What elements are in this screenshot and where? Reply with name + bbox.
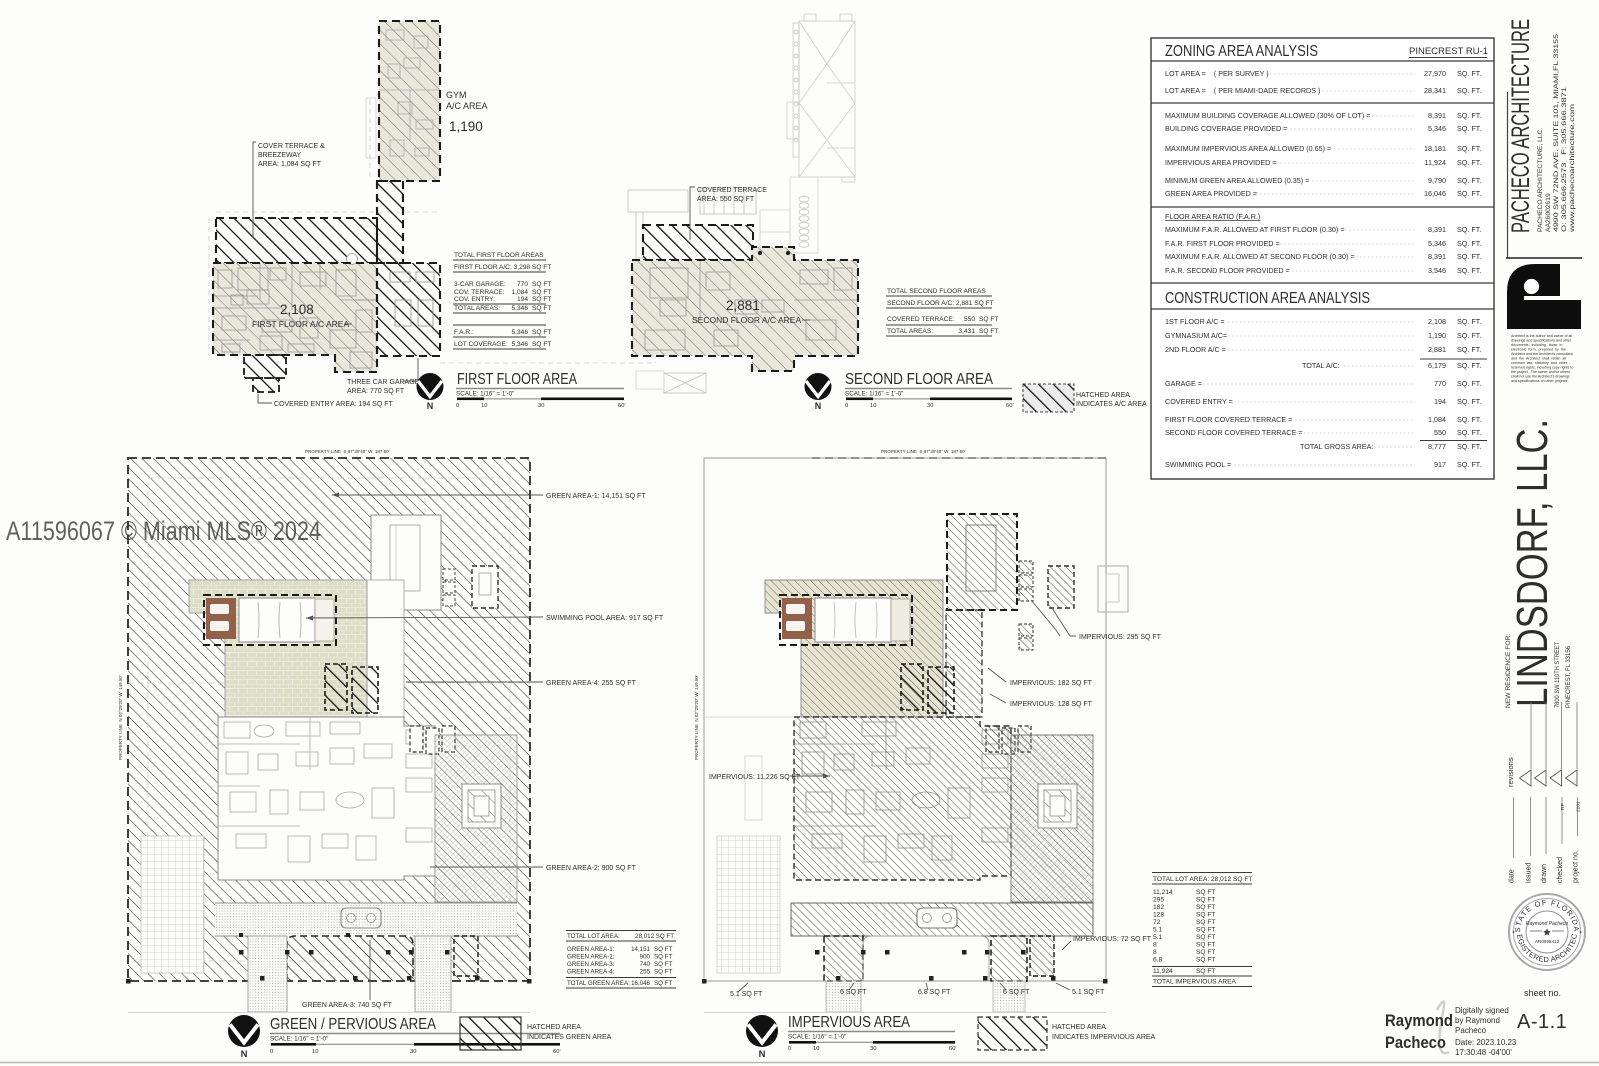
svg-text:FIRST FLOOR COVERED TERRACE =: FIRST FLOOR COVERED TERRACE = xyxy=(1165,415,1292,424)
svg-text:4990 SW 72ND AVE. SUITE 101, M: 4990 SW 72ND AVE. SUITE 101, MIAMI,FL 33… xyxy=(1553,34,1560,232)
svg-text:5,346: 5,346 xyxy=(1428,239,1446,248)
svg-text:182: 182 xyxy=(1153,904,1164,911)
svg-text:by Raymond: by Raymond xyxy=(1455,1016,1500,1025)
svg-text:770: 770 xyxy=(517,281,528,288)
svg-text:10: 10 xyxy=(813,1046,819,1052)
svg-text:COV. ENTRY:: COV. ENTRY: xyxy=(454,296,495,303)
svg-text:FIRST FLOOR A/C: 3,298 SQ FT: FIRST FLOOR A/C: 3,298 SQ FT xyxy=(454,264,551,271)
svg-text:SQ FT: SQ FT xyxy=(532,341,551,348)
svg-text:SECOND FLOOR A/C: 2,881 SQ FT: SECOND FLOOR A/C: 2,881 SQ FT xyxy=(887,300,994,307)
svg-text:TOTAL AREAS:: TOTAL AREAS: xyxy=(454,305,500,312)
svg-text:A/C AREA: A/C AREA xyxy=(446,101,488,111)
svg-text:SCALE: 1/16" = 1'-0": SCALE: 1/16" = 1'-0" xyxy=(456,391,514,398)
svg-text:SQ. FT.: SQ. FT. xyxy=(1457,189,1481,198)
svg-text:SECOND FLOOR AREA: SECOND FLOOR AREA xyxy=(845,371,994,388)
svg-text:Digitally signed: Digitally signed xyxy=(1455,1006,1509,1015)
svg-text:2,881: 2,881 xyxy=(1428,345,1446,354)
svg-text:MAXIMUM IMPERVIOUS AREA ALLOWE: MAXIMUM IMPERVIOUS AREA ALLOWED (0.65) = xyxy=(1165,144,1331,153)
svg-text:SCALE: 1/16" = 1'-0": SCALE: 1/16" = 1'-0" xyxy=(270,1036,328,1043)
svg-text:0: 0 xyxy=(456,403,459,409)
svg-text:SQ. FT.: SQ. FT. xyxy=(1457,442,1481,451)
svg-text:sheet no.: sheet no. xyxy=(1524,988,1561,998)
svg-text:FLOOR AREA RATIO (F.A.R.): FLOOR AREA RATIO (F.A.R.) xyxy=(1165,212,1260,221)
svg-text:N: N xyxy=(759,1049,766,1060)
svg-text:60': 60' xyxy=(949,1046,957,1052)
svg-text:GREEN AREA PROVIDED =: GREEN AREA PROVIDED = xyxy=(1165,189,1257,198)
svg-text:SQ FT: SQ FT xyxy=(654,954,672,961)
svg-text:6.8 SQ FT: 6.8 SQ FT xyxy=(918,989,951,996)
svg-text:COV. TERRACE:: COV. TERRACE: xyxy=(454,289,505,296)
svg-text:900: 900 xyxy=(640,954,651,961)
svg-text:AR0098412: AR0098412 xyxy=(1535,939,1560,944)
svg-text:F.A.R. FIRST FLOOR PROVIDED =: F.A.R. FIRST FLOOR PROVIDED = xyxy=(1165,239,1280,248)
svg-text:0: 0 xyxy=(845,403,848,409)
svg-text:IMPERVIOUS: 182 SQ FT: IMPERVIOUS: 182 SQ FT xyxy=(1010,680,1093,687)
svg-text:6.8: 6.8 xyxy=(1153,957,1162,964)
svg-text:GREEN AREA-4:: GREEN AREA-4: xyxy=(567,969,615,976)
svg-text:GARAGE =: GARAGE = xyxy=(1165,379,1202,388)
svg-text:9,790: 9,790 xyxy=(1428,176,1446,185)
svg-text:5.1: 5.1 xyxy=(1153,927,1162,934)
svg-text:N: N xyxy=(427,401,434,411)
svg-text:SQ. FT.: SQ. FT. xyxy=(1457,239,1481,248)
svg-text:GREEN AREA-1:: GREEN AREA-1: xyxy=(567,946,615,953)
svg-text:PROPERTY LINE S 87°30'40" W: PROPERTY LINE S 87°30'40" W 187.50' xyxy=(305,449,390,454)
svg-text:GYMNASIUM A/C=: GYMNASIUM A/C= xyxy=(1165,331,1227,340)
svg-text:SQ. FT.: SQ. FT. xyxy=(1457,361,1481,370)
svg-text:SQ. FT.: SQ. FT. xyxy=(1457,158,1481,167)
svg-text:shall not use the Architect's: shall not use the Architect's drawings xyxy=(1511,375,1570,379)
svg-text:Date: 2023.10.23: Date: 2023.10.23 xyxy=(1455,1038,1517,1047)
svg-text:checked: checked xyxy=(1557,857,1564,883)
svg-text:and specifications on other pr: and specifications on other projects. xyxy=(1511,379,1568,383)
svg-text:SQ. FT.: SQ. FT. xyxy=(1457,379,1481,388)
svg-text:HATCHED AREA: HATCHED AREA xyxy=(1076,392,1130,399)
svg-text:SQ FT: SQ FT xyxy=(654,961,672,968)
svg-text:Architect is the author and ow: Architect is the author and owner of all xyxy=(1511,334,1572,338)
svg-text:Raymond Pacheco: Raymond Pacheco xyxy=(1526,921,1568,927)
svg-text:2,108: 2,108 xyxy=(280,302,314,317)
svg-text:5,346: 5,346 xyxy=(511,341,528,348)
svg-text:drawn: drawn xyxy=(1541,864,1548,883)
svg-text:date: date xyxy=(1509,869,1516,883)
svg-text:SQ. FT.: SQ. FT. xyxy=(1457,397,1481,406)
svg-text:SQ FT: SQ FT xyxy=(1196,904,1215,911)
svg-text:common law, statutory and: common law, statutory and other xyxy=(1511,361,1568,365)
svg-text:28,012 SQ FT: 28,012 SQ FT xyxy=(635,933,674,940)
svg-text:8,777: 8,777 xyxy=(1428,442,1446,451)
svg-text:A11596067 © Miami MLS® 2024: A11596067 © Miami MLS® 2024 xyxy=(6,516,321,546)
svg-text:SQ. FT.: SQ. FT. xyxy=(1457,111,1481,120)
svg-text:SECOND FLOOR COVERED TERRACE =: SECOND FLOOR COVERED TERRACE = xyxy=(1165,428,1302,437)
svg-text:AREA: 1,084 SQ FT: AREA: 1,084 SQ FT xyxy=(258,161,322,168)
svg-text:60': 60' xyxy=(1006,403,1014,409)
svg-text:COVER TERRACE &: COVER TERRACE & xyxy=(258,143,325,150)
svg-text:30: 30 xyxy=(410,1049,416,1055)
svg-text:917: 917 xyxy=(1434,460,1446,469)
svg-text:IMPERVIOUS: 128 SQ FT: IMPERVIOUS: 128 SQ FT xyxy=(1010,701,1093,708)
svg-text:SWIMMING POOL =: SWIMMING POOL = xyxy=(1165,460,1231,469)
svg-text:SECOND FLOOR A/C AREA: SECOND FLOOR A/C AREA xyxy=(692,315,801,325)
svg-text:8,391: 8,391 xyxy=(1428,252,1446,261)
svg-text:GYM: GYM xyxy=(446,90,467,100)
svg-text:MINIMUM GREEN AREA ALLOWED (0.: MINIMUM GREEN AREA ALLOWED (0.35) = xyxy=(1165,176,1309,185)
svg-text:1ST FLOOR A/C =: 1ST FLOOR A/C = xyxy=(1165,317,1225,326)
svg-text:ZONING AREA ANALYSIS: ZONING AREA ANALYSIS xyxy=(1165,43,1318,60)
svg-text:194: 194 xyxy=(1434,397,1446,406)
svg-text:BREEZEWAY: BREEZEWAY xyxy=(258,152,302,159)
svg-text:HATCHED AREA: HATCHED AREA xyxy=(527,1024,581,1031)
svg-text:194: 194 xyxy=(517,296,528,303)
svg-text:FIRST FLOOR A/C AREA: FIRST FLOOR A/C AREA xyxy=(252,319,349,329)
svg-text:PINECREST RU-1: PINECREST RU-1 xyxy=(1409,46,1488,57)
svg-text:SQ FT: SQ FT xyxy=(532,289,551,296)
svg-text:INDICATES IMPERVIOUS AREA: INDICATES IMPERVIOUS AREA xyxy=(1052,1034,1156,1041)
svg-text:295: 295 xyxy=(1153,897,1164,904)
svg-text:5.1: 5.1 xyxy=(1153,934,1162,941)
svg-text:6 SQ FT: 6 SQ FT xyxy=(840,989,867,996)
svg-text:Pacheco: Pacheco xyxy=(1455,1026,1487,1035)
svg-text:5,346: 5,346 xyxy=(511,305,528,312)
svg-text:2,881: 2,881 xyxy=(726,298,760,313)
svg-text:F.A.R. SECOND FLOOR PROVIDED =: F.A.R. SECOND FLOOR PROVIDED = xyxy=(1165,266,1290,275)
svg-text:GREEN AREA-3: 740 SQ FT: GREEN AREA-3: 740 SQ FT xyxy=(302,1002,393,1009)
svg-text:SQ FT: SQ FT xyxy=(1196,927,1215,934)
svg-text:1,084: 1,084 xyxy=(1428,415,1446,424)
svg-text:PACHECO ARCHITECTURE: PACHECO ARCHITECTURE xyxy=(1507,19,1535,233)
svg-text:10: 10 xyxy=(481,403,487,409)
svg-text:RP: RP xyxy=(1560,803,1566,810)
svg-text:and the Architect shall re: and the Architect shall retain all xyxy=(1511,357,1566,361)
svg-text:F.A.R.:: F.A.R.: xyxy=(454,329,474,336)
svg-text:SQ FT: SQ FT xyxy=(1196,949,1215,956)
svg-text:30: 30 xyxy=(870,1046,876,1052)
svg-text:PROPERTY LINE S 87°30'40" W: PROPERTY LINE S 87°30'40" W 187.50' xyxy=(881,449,966,454)
svg-text:TOTAL LOT AREA: 28,012 SQ FT: TOTAL LOT AREA: 28,012 SQ FT xyxy=(1153,876,1252,883)
svg-text:1,190: 1,190 xyxy=(449,119,483,134)
svg-text:7800 SW 110TH STREET: 7800 SW 110TH STREET xyxy=(1554,642,1561,708)
svg-text:SQ FT: SQ FT xyxy=(532,305,551,312)
svg-text:GREEN AREA-3:: GREEN AREA-3: xyxy=(567,961,615,968)
svg-text:TOTAL SECOND FLOOR AREAS: TOTAL SECOND FLOOR AREAS xyxy=(887,288,986,295)
svg-text:28,341: 28,341 xyxy=(1424,86,1446,95)
svg-text:SQ FT: SQ FT xyxy=(532,329,551,336)
svg-text:5,346: 5,346 xyxy=(511,329,528,336)
svg-text:TOTAL GROSS AREA:: TOTAL GROSS AREA: xyxy=(1300,442,1373,451)
svg-text:SQ FT: SQ FT xyxy=(1196,968,1215,975)
svg-text:electronic form, prepared b: electronic form, prepared by the xyxy=(1511,348,1566,352)
svg-text:3,431: 3,431 xyxy=(958,328,975,335)
svg-text:MAXIMUM F.A.R. ALLOWED AT FIRS: MAXIMUM F.A.R. ALLOWED AT FIRST FLOOR (0… xyxy=(1165,225,1345,234)
svg-text:550: 550 xyxy=(1434,428,1446,437)
svg-text:SQ. FT.: SQ. FT. xyxy=(1457,460,1481,469)
svg-text:A-1.1: A-1.1 xyxy=(1517,1011,1567,1033)
svg-text:MAXIMUM F.A.R. ALLOWED AT SECO: MAXIMUM F.A.R. ALLOWED AT SECOND FLOOR (… xyxy=(1165,252,1355,261)
svg-text:5,346: 5,346 xyxy=(1428,124,1446,133)
svg-text:TOTAL GREEN AREA:: TOTAL GREEN AREA: xyxy=(567,980,630,987)
svg-text:TOTAL FIRST FLOOR AREAS: TOTAL FIRST FLOOR AREAS xyxy=(454,252,544,259)
svg-text:8: 8 xyxy=(1153,942,1157,949)
svg-text:Raymond: Raymond xyxy=(1385,1011,1453,1030)
svg-text:PROPERTY LINE N 02°29'20" W: PROPERTY LINE N 02°29'20" W 149.50' xyxy=(694,675,699,760)
svg-text:3,546: 3,546 xyxy=(1428,266,1446,275)
svg-text:revisions: revisions xyxy=(1506,757,1515,787)
svg-text:TOTAL LOT AREA:: TOTAL LOT AREA: xyxy=(567,933,620,940)
svg-text:IMPERVIOUS: 295 SQ FT: IMPERVIOUS: 295 SQ FT xyxy=(1079,634,1162,641)
svg-text:2ND FLOOR A/C =: 2ND FLOOR A/C = xyxy=(1165,345,1226,354)
svg-text:SCALE: 1/16" = 1'-0": SCALE: 1/16" = 1'-0" xyxy=(845,391,903,398)
svg-text:HATCHED AREA: HATCHED AREA xyxy=(1052,1024,1106,1031)
svg-text:SQ FT: SQ FT xyxy=(1196,912,1215,919)
svg-text:PINECREST, FL 33156: PINECREST, FL 33156 xyxy=(1565,646,1572,708)
svg-text:18,181: 18,181 xyxy=(1424,144,1446,153)
svg-text:AREA: 550 SQ FT: AREA: 550 SQ FT xyxy=(697,196,755,203)
svg-text:14,151: 14,151 xyxy=(631,946,650,953)
svg-text:SQ. FT.: SQ. FT. xyxy=(1457,415,1481,424)
svg-text:GREEN AREA-2: 900 SQ FT: GREEN AREA-2: 900 SQ FT xyxy=(546,865,637,872)
svg-text:SQ FT: SQ FT xyxy=(532,296,551,303)
svg-text:60': 60' xyxy=(553,1049,561,1055)
svg-text:30: 30 xyxy=(538,403,544,409)
svg-text:SQ. FT.: SQ. FT. xyxy=(1457,176,1481,185)
svg-text:SQ FT: SQ FT xyxy=(654,946,672,953)
svg-text:5.1 SQ FT: 5.1 SQ FT xyxy=(1072,989,1105,996)
svg-text:SQ. FT.: SQ. FT. xyxy=(1457,266,1481,275)
svg-text:SQ. FT.: SQ. FT. xyxy=(1457,69,1481,78)
svg-text:www.pachecoarchitecture.com: www.pachecoarchitecture.com xyxy=(1569,103,1576,233)
svg-text:LOT AREA = ( PER MIAMI-DADE: LOT AREA = ( PER MIAMI-DADE RECORDS ) xyxy=(1165,86,1320,95)
svg-text:27,970: 27,970 xyxy=(1424,69,1446,78)
svg-text:GREEN AREA-2:: GREEN AREA-2: xyxy=(567,954,615,961)
svg-text:11,924: 11,924 xyxy=(1153,968,1173,975)
svg-text:60': 60' xyxy=(618,403,626,409)
svg-text:SQ FT: SQ FT xyxy=(1196,957,1215,964)
svg-text:Pacheco: Pacheco xyxy=(1385,1033,1446,1052)
svg-text:8: 8 xyxy=(1153,949,1157,956)
svg-text:1,190: 1,190 xyxy=(1428,331,1446,340)
svg-text:CONSTRUCTION AREA ANALYSIS: CONSTRUCTION AREA ANALYSIS xyxy=(1165,290,1370,307)
svg-text:11,924: 11,924 xyxy=(1425,158,1446,167)
svg-text:AA26002619: AA26002619 xyxy=(1545,193,1552,232)
svg-text:SQ FT: SQ FT xyxy=(1196,889,1215,896)
svg-text:AREA: 770 SQ FT: AREA: 770 SQ FT xyxy=(347,388,405,395)
svg-text:SQ FT: SQ FT xyxy=(654,969,672,976)
svg-text:INDICATES GREEN AREA: INDICATES GREEN AREA xyxy=(527,1034,612,1041)
svg-text:16,046: 16,046 xyxy=(1424,189,1446,198)
svg-text:IMPERVIOUS AREA PROVIDED =: IMPERVIOUS AREA PROVIDED = xyxy=(1165,158,1277,167)
svg-text:72: 72 xyxy=(1153,919,1161,926)
svg-text:LOT COVERAGE:: LOT COVERAGE: xyxy=(454,341,508,348)
svg-text:0: 0 xyxy=(270,1049,273,1055)
svg-text:PACHECO ARCHITECTURE, LLC.: PACHECO ARCHITECTURE, LLC. xyxy=(1537,128,1544,232)
svg-text:LOT AREA = ( PER SURVEY ): LOT AREA = ( PER SURVEY ) xyxy=(1165,69,1269,78)
svg-text:SQ FT: SQ FT xyxy=(1196,942,1215,949)
svg-text:30: 30 xyxy=(927,403,933,409)
svg-text:COVERED ENTRY AREA: 194 SQ FT: COVERED ENTRY AREA: 194 SQ FT xyxy=(274,401,394,408)
svg-text:8,391: 8,391 xyxy=(1428,111,1446,120)
svg-text:SQ. FT.: SQ. FT. xyxy=(1457,331,1481,340)
svg-text:IMPERVIOUS AREA: IMPERVIOUS AREA xyxy=(788,1014,911,1031)
svg-text:FIRST FLOOR AREA: FIRST FLOOR AREA xyxy=(457,371,578,388)
svg-text:Architect and the Architect's: Architect and the Architect's consultant xyxy=(1511,352,1573,356)
svg-text:2201: 2201 xyxy=(1576,801,1582,812)
svg-text:SQ. FT.: SQ. FT. xyxy=(1457,428,1481,437)
svg-text:reserved rights, including cop: reserved rights, including copy rights t… xyxy=(1511,366,1573,370)
svg-text:SQ. FT.: SQ. FT. xyxy=(1457,345,1481,354)
svg-text:O: 305.666.2573 F: 305.666.3: O: 305.666.2573 F: 305.666.3871 xyxy=(1561,87,1568,232)
svg-text:10: 10 xyxy=(870,403,876,409)
svg-text:770: 770 xyxy=(1434,379,1446,388)
svg-text:SQ FT: SQ FT xyxy=(1196,897,1215,904)
svg-text:GREEN AREA-4: 255 SQ FT: GREEN AREA-4: 255 SQ FT xyxy=(546,680,637,687)
svg-text:255: 255 xyxy=(640,969,651,976)
svg-text:8,391: 8,391 xyxy=(1428,225,1446,234)
svg-text:COVERED TERRACE: COVERED TERRACE xyxy=(697,187,767,194)
svg-text:SWIMMING POOL AREA: 917 SQ FT: SWIMMING POOL AREA: 917 SQ FT xyxy=(546,615,664,622)
svg-text:IMPERVIOUS: 72 SQ FT: IMPERVIOUS: 72 SQ FT xyxy=(1073,936,1152,943)
svg-text:SQ. FT.: SQ. FT. xyxy=(1457,86,1481,95)
svg-text:11,214: 11,214 xyxy=(1153,889,1173,896)
svg-text:SQ. FT.: SQ. FT. xyxy=(1457,144,1481,153)
svg-text:issued: issued xyxy=(1526,863,1533,883)
svg-text:TOTAL IMPERVIOUS AREA: TOTAL IMPERVIOUS AREA xyxy=(1153,979,1237,986)
svg-text:SQ FT: SQ FT xyxy=(654,980,672,987)
svg-text:2,108: 2,108 xyxy=(1428,317,1446,326)
svg-text:128: 128 xyxy=(1153,912,1164,919)
svg-text:COVERED TERRACE:: COVERED TERRACE: xyxy=(887,316,955,323)
svg-text:SQ. FT.: SQ. FT. xyxy=(1457,252,1481,261)
svg-text:GREEN / PERVIOUS AREA: GREEN / PERVIOUS AREA xyxy=(270,1016,437,1033)
svg-text:6 SQ FT: 6 SQ FT xyxy=(1003,989,1030,996)
svg-text:3-CAR GARAGE:: 3-CAR GARAGE: xyxy=(454,281,506,288)
svg-text:MAXIMUM BUILDING COVERAGE ALLO: MAXIMUM BUILDING COVERAGE ALLOWED (30% O… xyxy=(1165,111,1370,120)
svg-text:0: 0 xyxy=(788,1046,791,1052)
svg-text:project no.: project no. xyxy=(1573,850,1580,883)
svg-text:TOTAL AREAS:: TOTAL AREAS: xyxy=(887,328,933,335)
svg-text:SQ FT: SQ FT xyxy=(532,281,551,288)
svg-text:SQ. FT.: SQ. FT. xyxy=(1457,225,1481,234)
svg-text:SQ. FT.: SQ. FT. xyxy=(1457,124,1481,133)
svg-text:SQ FT: SQ FT xyxy=(979,316,998,323)
svg-text:6,179: 6,179 xyxy=(1428,361,1446,370)
svg-text:BUILDING COVERAGE PROVIDED =: BUILDING COVERAGE PROVIDED = xyxy=(1165,124,1287,133)
svg-text:10: 10 xyxy=(312,1049,318,1055)
svg-text:TOTAL A/C:: TOTAL A/C: xyxy=(1302,361,1340,370)
svg-text:the project. The owner and/or: the project. The owner and/or others xyxy=(1511,370,1570,374)
svg-text:550: 550 xyxy=(964,316,975,323)
svg-text:SQ FT: SQ FT xyxy=(1196,934,1215,941)
svg-text:LINDSDORF, LLC.: LINDSDORF, LLC. xyxy=(1508,419,1557,707)
svg-text:GREEN AREA-1: 14,151 SQ FT: GREEN AREA-1: 14,151 SQ FT xyxy=(546,493,646,500)
svg-text:documents, including, those: documents, including, those in xyxy=(1511,343,1562,347)
svg-text:drawings and specifications an: drawings and specifications and other xyxy=(1511,339,1572,343)
svg-text:PROPERTY LINE N 02°29'20" W: PROPERTY LINE N 02°29'20" W 149.50' xyxy=(118,675,123,760)
svg-text:COVERED ENTRY =: COVERED ENTRY = xyxy=(1165,397,1233,406)
svg-text:SCALE: 1/16" = 1'-0": SCALE: 1/16" = 1'-0" xyxy=(788,1034,846,1041)
svg-text:INDICATES A/C AREA: INDICATES A/C AREA xyxy=(1076,401,1147,408)
svg-text:5.1 SQ FT: 5.1 SQ FT xyxy=(730,991,763,998)
svg-text:740: 740 xyxy=(640,961,651,968)
svg-text:17:30:48 -04'00': 17:30:48 -04'00' xyxy=(1455,1048,1512,1057)
svg-text:IMPERVIOUS: 11,226 SQ FT: IMPERVIOUS: 11,226 SQ FT xyxy=(709,774,801,781)
svg-text:THREE CAR GARAGE: THREE CAR GARAGE xyxy=(347,379,420,386)
svg-text:N: N xyxy=(815,401,822,411)
svg-text:SQ FT: SQ FT xyxy=(979,328,998,335)
svg-text:SQ. FT.: SQ. FT. xyxy=(1457,317,1481,326)
svg-text:N: N xyxy=(241,1049,248,1060)
svg-text:16,046: 16,046 xyxy=(631,980,650,987)
svg-text:SQ FT: SQ FT xyxy=(1196,919,1215,926)
svg-text:1,084: 1,084 xyxy=(511,289,528,296)
